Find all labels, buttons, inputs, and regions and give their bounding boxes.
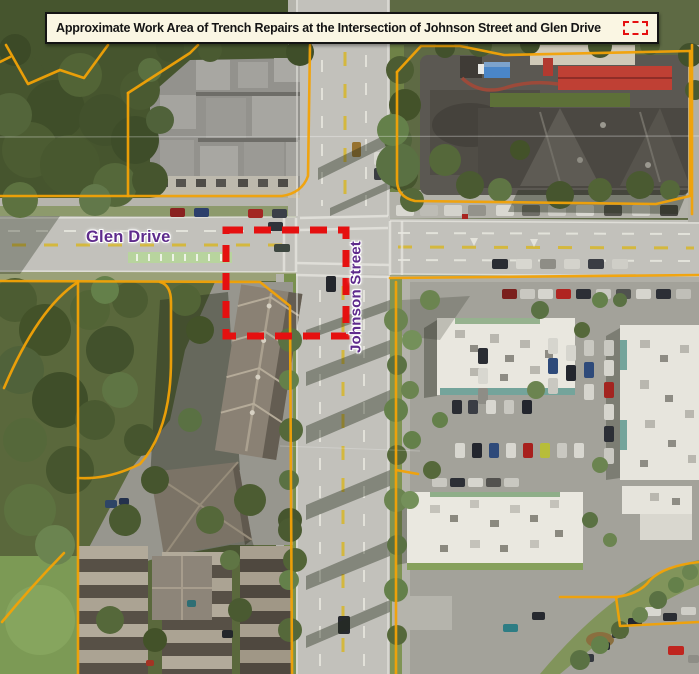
work-area-legend-icon [623,21,648,35]
bike-lane-marking [128,252,232,263]
northwest-apartment-block [150,58,300,198]
banner-title: Approximate Work Area of Trench Repairs … [56,21,614,35]
map-canvas: Glen Drive Johnson Street Approximate Wo… [0,0,699,674]
street-label-johnson-street: Johnson Street [348,241,365,353]
street-label-glen-drive: Glen Drive [86,228,171,247]
title-banner: Approximate Work Area of Trench Repairs … [45,12,659,44]
